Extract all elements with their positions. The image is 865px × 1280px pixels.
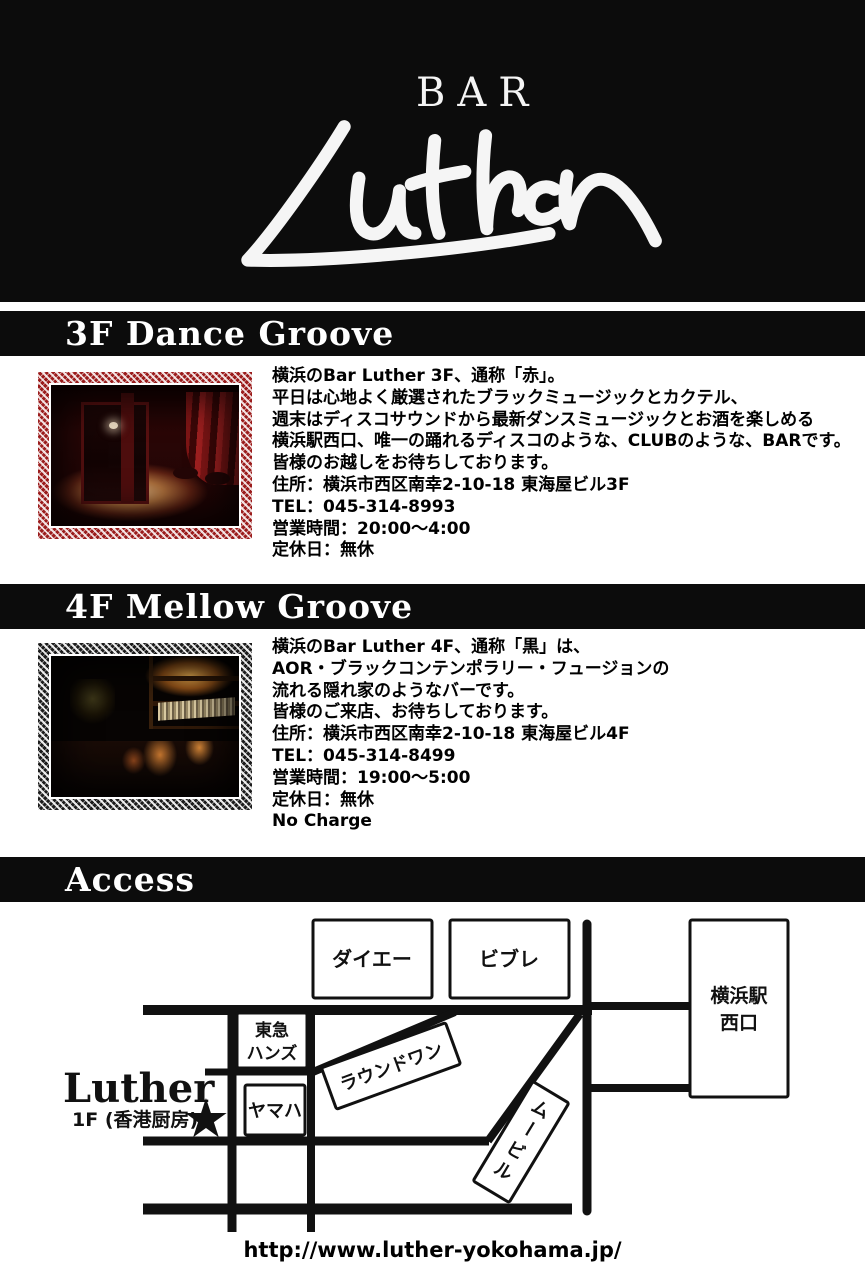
floor4-address: 住所：横浜市西区南幸2-10-18 東海屋ビル4F bbox=[272, 724, 862, 746]
floor4-line: 皆様のご来店、お待ちしております。 bbox=[272, 702, 862, 724]
section-title-3f: 3F Dance Groove bbox=[65, 311, 394, 356]
section-title-4f: 4F Mellow Groove bbox=[65, 584, 413, 629]
vivre-label: ビブレ bbox=[479, 947, 539, 971]
floor4-no-charge: No Charge bbox=[272, 811, 862, 833]
floor3-tel: TEL：045-314-8993 bbox=[272, 497, 862, 519]
map-landmarks: ダイエー ビブレ 横浜駅 西口 東急 ハンズ ヤマハ ラウンドワン ム ー ビ … bbox=[237, 920, 788, 1203]
tokyu-hands-label-line1: 東急 bbox=[255, 1020, 289, 1041]
floor4-holiday: 定休日：無休 bbox=[272, 790, 862, 812]
access-map: ダイエー ビブレ 横浜駅 西口 東急 ハンズ ヤマハ ラウンドワン ム ー ビ … bbox=[0, 902, 865, 1237]
logo-text: Luther bbox=[0, 0, 1, 1]
floor4-photo-vignette bbox=[51, 656, 239, 797]
luther-script-logo-icon bbox=[230, 55, 670, 275]
floor3-address: 住所：横浜市西区南幸2-10-18 東海屋ビル3F bbox=[272, 475, 862, 497]
floor3-line: 横浜駅西口、唯一の踊れるディスコのような、CLUBのような、BARです。 bbox=[272, 431, 862, 453]
floor4-line: 流れる隠れ家のようなバーです。 bbox=[272, 681, 862, 703]
floor3-description: 横浜のBar Luther 3F、通称「赤」。 平日は心地よく厳選されたブラック… bbox=[272, 366, 862, 562]
floor3-holiday: 定休日：無休 bbox=[272, 540, 862, 562]
header-logo-panel: BAR Luther bbox=[0, 0, 865, 302]
floor4-description: 横浜のBar Luther 4F、通称「黒」は、 AOR・ブラックコンテンポラリ… bbox=[272, 637, 862, 833]
section-bar-4f: 4F Mellow Groove bbox=[0, 584, 865, 629]
floor4-hours: 営業時間：19:00～5:00 bbox=[272, 768, 862, 790]
station-label-line2: 西口 bbox=[720, 1012, 758, 1034]
floor4-line: 横浜のBar Luther 4F、通称「黒」は、 bbox=[272, 637, 862, 659]
section-bar-3f: 3F Dance Groove bbox=[0, 311, 865, 356]
section-title-access: Access bbox=[65, 857, 195, 902]
site-url-link[interactable]: http://www.luther-yokohama.jp/ bbox=[0, 1238, 865, 1262]
floor4-line: AOR・ブラックコンテンポラリー・フュージョンの bbox=[272, 659, 862, 681]
floor3-photo bbox=[49, 383, 241, 528]
tokyu-hands-label-line2: ハンズ bbox=[247, 1043, 298, 1064]
floor3-hours: 営業時間：20:00～4:00 bbox=[272, 519, 862, 541]
yamaha-label: ヤマハ bbox=[248, 1101, 302, 1122]
station-label-line1: 横浜駅 bbox=[710, 984, 768, 1007]
floor4-photo bbox=[49, 654, 241, 799]
yokohama-station-box bbox=[690, 920, 788, 1097]
floor3-line: 皆様のお越しをお待ちしております。 bbox=[272, 453, 862, 475]
daiei-label: ダイエー bbox=[332, 947, 412, 971]
floor3-photo-vignette bbox=[51, 385, 239, 526]
floor4-photo-frame bbox=[38, 643, 252, 810]
bar-luther-page: BAR Luther 3F Dance Groove bbox=[0, 0, 865, 1280]
floor3-line: 横浜のBar Luther 3F、通称「赤」。 bbox=[272, 366, 862, 388]
floor4-tel: TEL：045-314-8499 bbox=[272, 746, 862, 768]
floor3-line: 平日は心地よく厳選されたブラックミュージックとカクテル、 bbox=[272, 388, 862, 410]
floor3-line: 週末はディスコサウンドから最新ダンスミュージックとお酒を楽しめる bbox=[272, 410, 862, 432]
map-luther-floor-label: 1F (香港厨房) bbox=[72, 1108, 198, 1131]
section-bar-access: Access bbox=[0, 857, 865, 902]
star-icon: ★ bbox=[182, 1087, 230, 1150]
floor3-photo-frame bbox=[38, 372, 252, 539]
